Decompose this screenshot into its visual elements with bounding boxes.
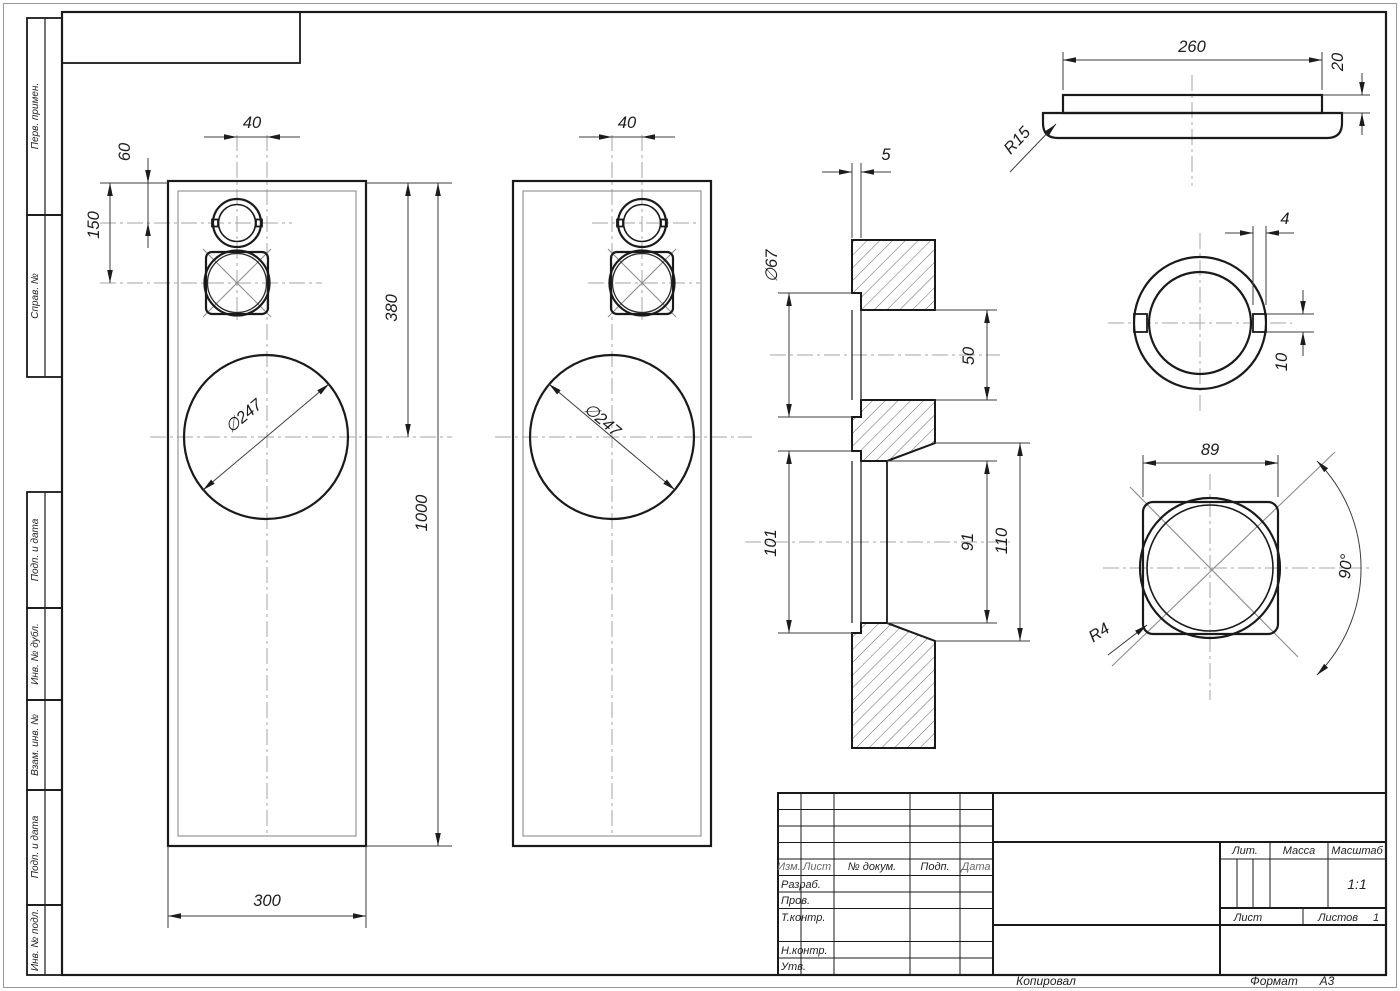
sidebar-box-sprav-no: Справ. № (27, 215, 62, 377)
dim-face-thickness-5: 5 (822, 146, 891, 238)
section-top-block (852, 240, 935, 310)
dim-width-300: 300 (168, 846, 366, 928)
drawing-sheet: Перв. примен. Справ. № Подп. и дата Инв.… (0, 0, 1400, 991)
sidebar-label: Инв. № подл. (30, 909, 41, 971)
sidebar-label: Подп. и дата (30, 518, 41, 581)
scale-value: 1:1 (1347, 876, 1366, 892)
row-tcontrol: Т.контр. (781, 912, 825, 924)
format-label: Формат (1250, 974, 1298, 988)
dim-tweeter-rebate-67: ∅67 (763, 249, 852, 417)
sidebar-box-inv-dubl: Инв. № дубл. (27, 608, 62, 700)
svg-text:150: 150 (85, 210, 103, 238)
sidebar-label: Инв. № дубл. (29, 623, 41, 685)
sheets-value: 1 (1373, 912, 1379, 924)
svg-text:1000: 1000 (413, 494, 431, 532)
sidebar-box-vzam-inv: Взам. инв. № (27, 700, 62, 790)
svg-text:89: 89 (1201, 441, 1219, 459)
panel-front-view-left: 40 60 150 380 1000 (85, 114, 452, 928)
sidebar-box-podp-data-2: Подп. и дата (27, 790, 62, 905)
section-mid-block (852, 400, 935, 461)
sidebar-box-podp-data-1: Подп. и дата (27, 492, 62, 608)
svg-text:101: 101 (762, 529, 780, 557)
format-value: А3 (1319, 974, 1335, 988)
svg-text:90°: 90° (1336, 553, 1356, 580)
sidebar-label: Взам. инв. № (30, 714, 41, 776)
dim-fillet-r15: R15 (1000, 123, 1056, 172)
svg-text:110: 110 (993, 527, 1011, 554)
copied-label: Копировал (1016, 974, 1076, 988)
svg-text:300: 300 (253, 892, 281, 910)
dim-notch-depth-4: 4 (1225, 210, 1294, 305)
svg-text:10: 10 (1273, 352, 1291, 371)
drawing-canvas: Перв. примен. Справ. № Подп. и дата Инв.… (0, 0, 1400, 991)
dim-thickness-20: 20 (1322, 52, 1370, 135)
col-date: Дата (959, 861, 990, 873)
col-list: Лист (802, 861, 831, 873)
svg-text:∅247: ∅247 (580, 400, 624, 441)
svg-text:260: 260 (1177, 38, 1206, 56)
sheets-label: Листов (1317, 912, 1358, 924)
svg-text:20: 20 (1329, 52, 1347, 72)
stamp-sidebar: Перв. примен. Справ. № Подп. и дата Инв.… (27, 18, 62, 975)
panel-front-view-right: 40 ∅247 (495, 114, 752, 846)
col-doc: № докум. (848, 861, 896, 873)
detail-tweeter-cutout: 4 10 (1108, 210, 1314, 413)
title-block: Изм. Лист № докум. Подп. Дата Разраб. Пр… (777, 793, 1386, 975)
svg-text:R4: R4 (1086, 620, 1113, 647)
svg-text:∅67: ∅67 (763, 249, 781, 283)
svg-text:40: 40 (243, 114, 262, 132)
dim-notch-height-10: 10 (1266, 290, 1314, 371)
row-developed: Разраб. (781, 879, 821, 891)
row-approved: Утв. (780, 961, 806, 973)
dim-corner-r4: R4 (1086, 620, 1147, 655)
svg-text:R15: R15 (1000, 123, 1034, 158)
svg-text:40: 40 (618, 114, 637, 132)
svg-text:91: 91 (959, 533, 977, 551)
row-checked: Пров. (781, 895, 810, 907)
mass-label: Масса (1283, 845, 1316, 857)
row-ncontrol: Н.контр. (781, 945, 828, 957)
dim-offset-40: 40 (579, 114, 675, 137)
dim-woofer-dia: ∅247 (203, 384, 329, 490)
dim-offset-40: 40 (204, 114, 300, 137)
sidebar-label: Подп. и дата (30, 815, 41, 878)
sidebar-label: Справ. № (30, 273, 41, 319)
col-izm: Изм. (777, 861, 800, 873)
top-left-stamp-box (62, 12, 300, 63)
sidebar-box-perv-primen: Перв. примен. (27, 18, 62, 215)
section-bottom-block (852, 623, 935, 748)
section-view: 5 ∅67 50 101 91 (745, 146, 1030, 748)
svg-text:5: 5 (881, 146, 891, 164)
dim-height-1000: 1000 (366, 183, 452, 846)
detail-mid-cutout: 89 90° R4 (1086, 441, 1372, 700)
scale-label: Масштаб (1331, 845, 1383, 857)
lit-label: Лит. (1231, 845, 1258, 857)
side-profile-view: 260 20 R15 (1000, 38, 1370, 186)
sidebar-box-inv-podl: Инв. № подл. (27, 905, 62, 975)
svg-text:380: 380 (383, 293, 401, 321)
svg-text:50: 50 (960, 346, 978, 365)
svg-text:∅247: ∅247 (222, 395, 266, 436)
sheet-frame (4, 4, 1397, 988)
col-sign: Подп. (920, 861, 949, 873)
sidebar-label: Перв. примен. (30, 83, 41, 149)
svg-text:4: 4 (1280, 210, 1289, 228)
dim-top-380: 380 (366, 183, 452, 437)
svg-text:60: 60 (116, 142, 134, 161)
sheet-label: Лист (1233, 912, 1262, 924)
dim-top-150: 150 (85, 183, 110, 283)
